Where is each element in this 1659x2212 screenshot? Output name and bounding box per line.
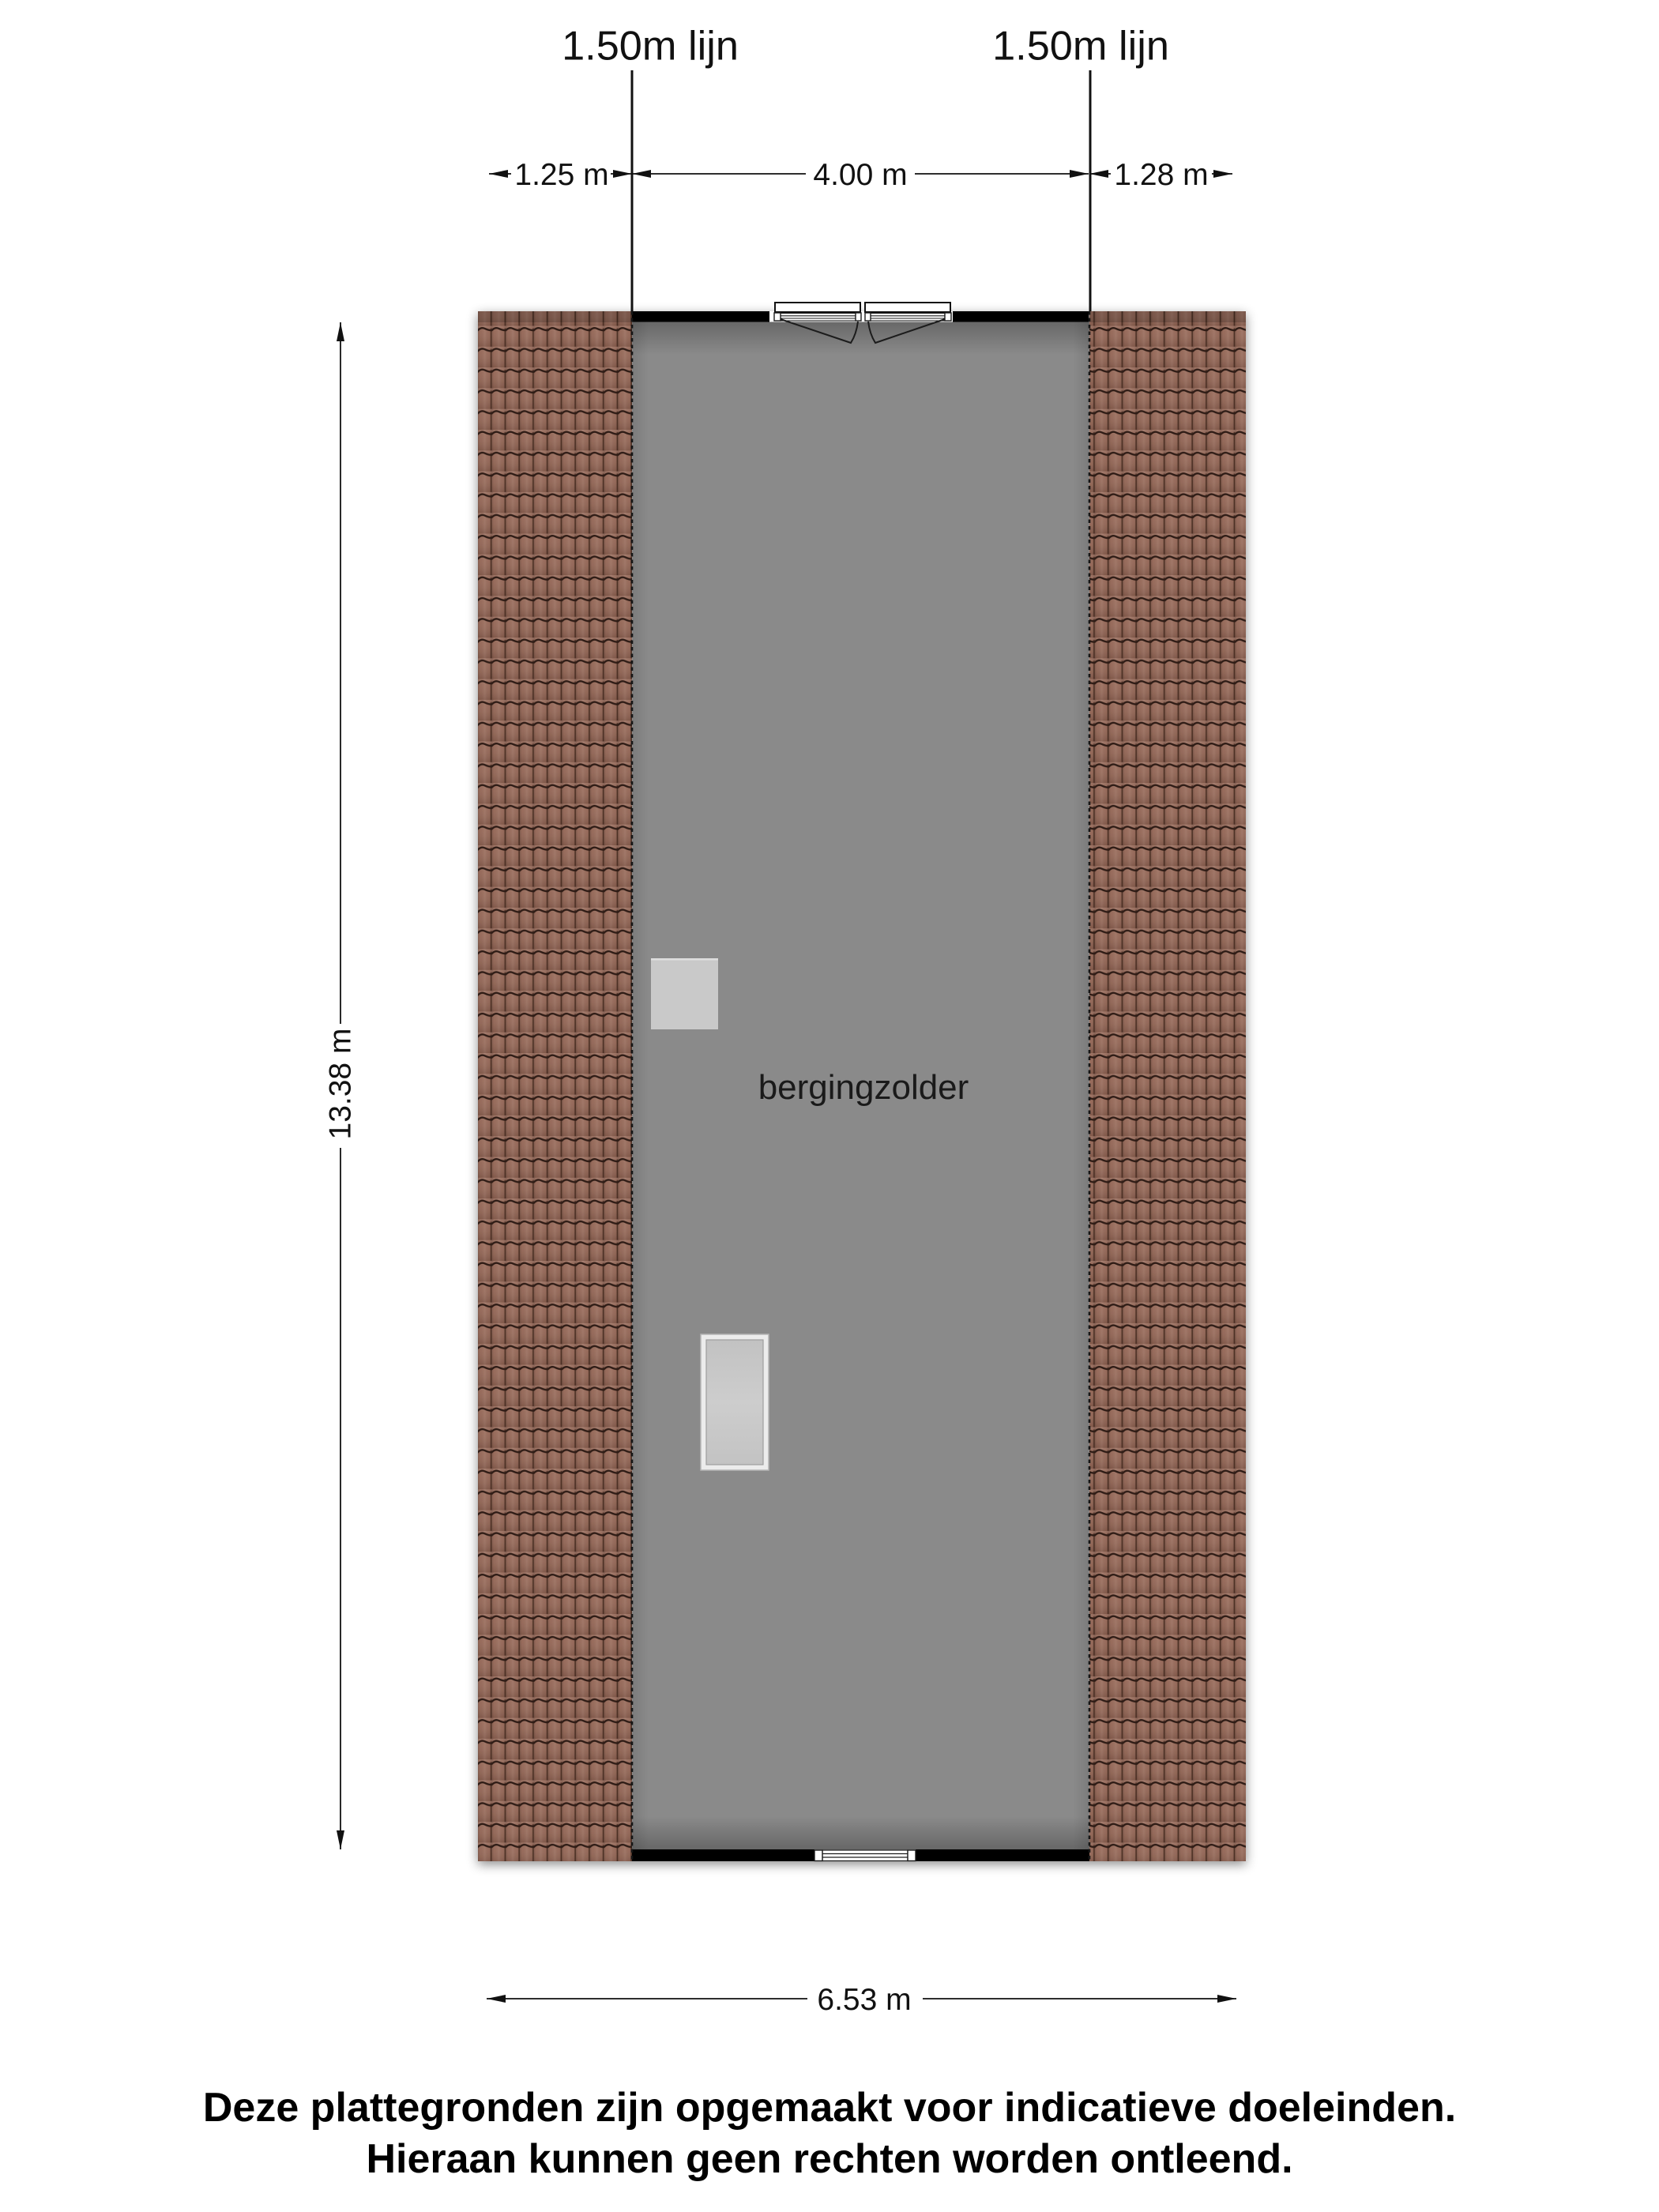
svg-text:1.50m lijn: 1.50m lijn <box>562 24 739 70</box>
svg-text:bergingzolder: bergingzolder <box>758 1068 969 1107</box>
svg-text:1.28 m: 1.28 m <box>1114 158 1208 192</box>
svg-text:13.38 m: 13.38 m <box>324 1029 358 1140</box>
svg-text:1.50m lijn: 1.50m lijn <box>992 24 1169 70</box>
svg-text:4.00 m: 4.00 m <box>813 158 907 192</box>
svg-text:6.53 m: 6.53 m <box>817 1983 911 2017</box>
svg-text:1.25 m: 1.25 m <box>514 158 608 192</box>
svg-text:Deze plattegronden zijn opgema: Deze plattegronden zijn opgemaakt voor i… <box>203 2085 1456 2131</box>
svg-text:Hieraan kunnen geen rechten wo: Hieraan kunnen geen rechten worden ontle… <box>366 2136 1292 2182</box>
